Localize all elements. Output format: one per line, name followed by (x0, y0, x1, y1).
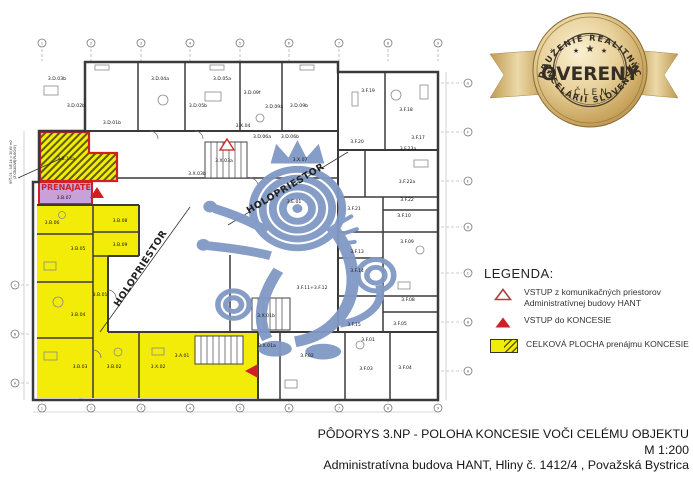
badge-title: OVERENÝ (541, 63, 640, 85)
badge-star-right: ★ (601, 47, 607, 55)
room-label: 3.D.06a (253, 134, 271, 140)
room-label: 3.B.06 (45, 220, 60, 226)
room-label: 3.F.17 (411, 135, 425, 141)
grid-mark-label: 7 (338, 406, 340, 410)
room-label: 3.F.18 (399, 107, 413, 113)
grid-mark-label: 5 (239, 406, 241, 410)
room-label: 3.F.03 (359, 366, 373, 372)
legend-line: CELKOVÁ PLOCHA prenájmu KONCESIE (526, 339, 689, 349)
grid-mark-label: 8 (387, 41, 389, 45)
room-label: 3.F.23a (400, 146, 417, 152)
room-label: 3.B.04 (71, 312, 86, 318)
legend-heading: LEGENDA: (484, 266, 690, 281)
room-label: 3.F.21 (347, 206, 361, 212)
room-label: 3.X.07 (293, 157, 308, 163)
room-label: 3.B.05 (71, 246, 86, 252)
room-label: 3.B.01 (93, 292, 108, 298)
room-label: 3.X.03a (215, 158, 233, 164)
room-label: 3.F.20 (350, 139, 364, 145)
lion-tail-curl-2 (218, 291, 249, 318)
room-label: 3.B.07 (57, 195, 72, 201)
drawing-title: PÔDORYS 3.NP - POLOHA KONCESIE VOČI CELÉ… (269, 427, 689, 443)
legend-item-label: CELKOVÁ PLOCHA prenájmu KONCESIE (526, 339, 689, 350)
lion-paw-2 (197, 239, 210, 251)
room-label: 3.D.01b (103, 120, 121, 126)
grid-mark-label: 9 (437, 41, 439, 45)
room-label: 3.X.01b (257, 313, 275, 319)
grid-mark-label: F (467, 130, 469, 134)
room-label: 3.F.13 (350, 249, 364, 255)
room-label: 3.D.09a (265, 104, 283, 110)
room-label: 3.F.14 (350, 268, 364, 274)
room-label: 3.F.22 (400, 197, 414, 203)
grid-mark-label: 6 (288, 406, 290, 410)
room-label: 3.D.09f (244, 90, 261, 96)
grid-mark-label: 3 (140, 41, 142, 45)
badge-dot-right: ★ (629, 69, 634, 75)
room-label: 3.F.04 (398, 365, 412, 371)
grid-mark-label: 1 (41, 41, 43, 45)
room-label: 3.F.11+3.F.12 (296, 285, 327, 291)
room-label: 3.B.08 (113, 218, 128, 224)
lion-paw-1 (203, 201, 216, 213)
corridor-labels: HOLOPRIESTORHOLOPRIESTOR (112, 161, 327, 309)
room-label: 3.F.15 (347, 322, 361, 328)
room-label: 3.F.19 (361, 88, 375, 94)
floor-plan-sheet: 123456789123456789GFEDCBACBA (0, 0, 693, 490)
grid-mark-label: 2 (90, 41, 92, 45)
drawing-address: Administratívna budova HANT, Hliny č. 14… (269, 458, 689, 474)
room-label: 3.X.01a (258, 343, 276, 349)
title-block: PÔDORYS 3.NP - POLOHA KONCESIE VOČI CELÉ… (269, 427, 689, 474)
legend-line: Administratívnej budovy HANT (524, 298, 641, 308)
room-label: 3.D.05a (213, 76, 231, 82)
badge-star-center: ★ (586, 44, 595, 55)
room-label: 3.D.09b (290, 103, 308, 109)
legend-item-entry-to-concession: VSTUP do KONCESIE (484, 315, 690, 329)
room-label: 3.F.10 (397, 213, 411, 219)
badge-dot-left: ★ (547, 69, 552, 75)
room-label: 3.E.01 (287, 199, 302, 205)
room-label: 3.F.05 (393, 321, 407, 327)
room-label: 3.D.05b (189, 103, 207, 109)
room-label: 3.X.02 (151, 364, 166, 370)
verified-member-badge: ZDRUŽENIE REALITNÝCH KANCELÁRIÍ SLOVENSK… (478, 4, 690, 140)
area-swatch-icon (490, 339, 518, 353)
grid-mark-label: 7 (338, 41, 340, 45)
room-label: 3.D.02b (67, 103, 85, 109)
triangle-outline-icon (492, 288, 514, 301)
margin-note-line: (Z CELKOVEJ PLOCHY) (13, 145, 17, 179)
hatched-area (40, 132, 117, 181)
room-label: 3.B.02 (107, 364, 122, 370)
grid-mark-label: 2 (90, 406, 92, 410)
grid-mark-label: 6 (288, 41, 290, 45)
prenajate-label: PRENAJATÉ (41, 181, 91, 192)
triangle-filled-icon (492, 316, 514, 329)
legend-item-label: VSTUP z komunikačných priestorov Adminis… (524, 287, 661, 308)
drawing-scale: M 1:200 (269, 443, 689, 459)
room-label: 3.X.04 (236, 123, 251, 129)
room-label: 3.B.03 (73, 364, 88, 370)
grid-mark-label: 4 (189, 406, 191, 410)
legend-item-label: VSTUP do KONCESIE (524, 315, 611, 326)
room-label: 3.D.03b (48, 76, 66, 82)
room-label: 3.A.01 (175, 353, 190, 359)
room-label: 3.F.22a (399, 179, 416, 185)
legend-item-entry-from-common: VSTUP z komunikačných priestorov Adminis… (484, 287, 690, 308)
legend: LEGENDA: VSTUP z komunikačných priestoro… (484, 266, 690, 360)
grid-mark-label: 8 (387, 406, 389, 410)
grid-mark-label: 3 (140, 406, 142, 410)
grid-mark-label: G (467, 81, 470, 85)
room-label: 3.F.08 (401, 297, 415, 303)
lion-front-leg-2 (208, 246, 271, 256)
room-label: 3.F.02 (300, 353, 314, 359)
room-label: 3.B.14a (57, 156, 75, 162)
grid-mark-label: E (467, 179, 469, 183)
legend-line: VSTUP do KONCESIE (524, 315, 611, 325)
grid-mark-label: D (467, 225, 470, 229)
badge-star-left: ★ (573, 47, 579, 55)
margin-note: VÝŤ. 03 - 3.B.14 = 30,60 m2(Z CELKOVEJ P… (8, 140, 17, 184)
room-label: 3.F.09 (400, 239, 414, 245)
room-label: 3.X.03b (188, 171, 206, 177)
room-label: 3.D.04a (151, 76, 169, 82)
legend-line: VSTUP z komunikačných priestorov (524, 287, 661, 297)
badge-subtitle: ČLEN (574, 86, 610, 98)
grid-mark-label: 5 (239, 41, 241, 45)
legend-item-total-area: CELKOVÁ PLOCHA prenájmu KONCESIE (484, 339, 690, 353)
grid-mark-label: 9 (437, 406, 439, 410)
room-label: 3.B.09 (113, 242, 128, 248)
grid-mark-label: 4 (189, 41, 191, 45)
room-label: 3.F.01 (361, 337, 375, 343)
room-label: 3.D.06b (281, 134, 299, 140)
grid-mark-label: 1 (41, 406, 43, 410)
